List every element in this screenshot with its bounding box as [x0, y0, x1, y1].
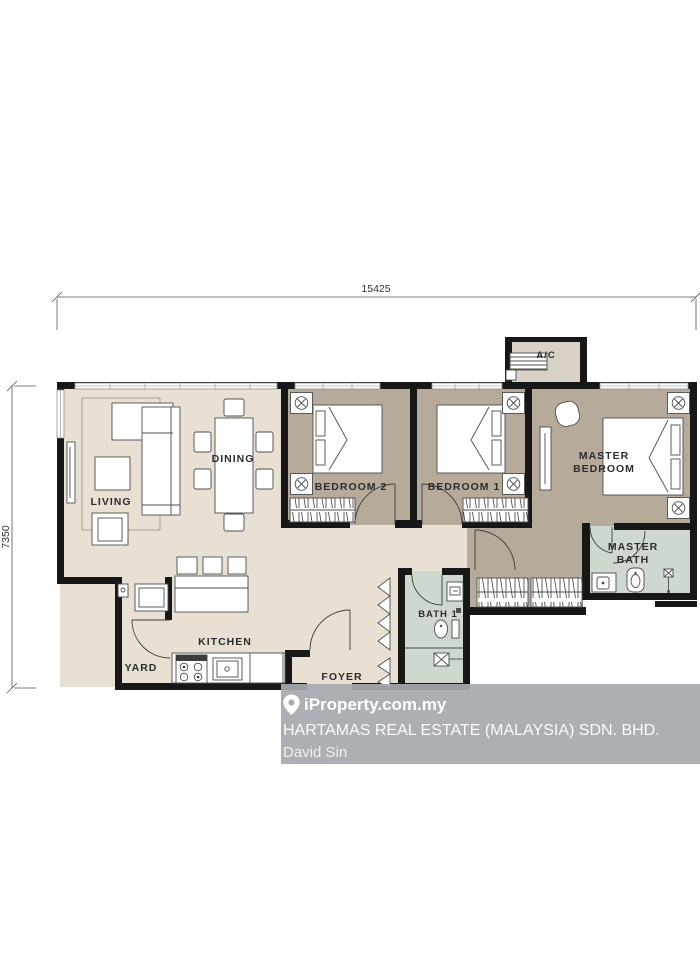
room-label-living: LIVING: [90, 496, 131, 508]
floor-plan: LIVING DINING BEDROOM 2 BEDROOM 1 MASTER…: [0, 0, 700, 976]
wall-between-doors: [395, 520, 422, 528]
room-label-master-bath-line2: BATH: [617, 554, 649, 566]
toilet-icon: [627, 568, 644, 592]
dimension-width-label: 15425: [361, 283, 390, 295]
wall-yard-left: [115, 584, 122, 690]
wall-ac-right: [580, 337, 587, 384]
room-label-foyer: FOYER: [321, 671, 362, 683]
window-living: [75, 383, 277, 389]
wall-ledge-stub: [655, 601, 697, 607]
bed-double: [313, 405, 382, 473]
dining-chair: [224, 514, 244, 531]
dining-chair: [224, 399, 244, 416]
wardrobe: [477, 578, 528, 607]
watermark-agent: David Sin: [283, 744, 347, 761]
wall-bedroom-divider: [410, 382, 417, 528]
wall-right: [690, 382, 697, 600]
room-label-bath1: BATH 1: [418, 609, 458, 620]
wall-master-bath-top: [614, 523, 697, 530]
room-label-ac: A/C: [536, 350, 555, 361]
bedside-lamp-icon: [668, 393, 690, 414]
dining-chair: [194, 469, 211, 489]
room-label-master-bedroom-line1: MASTER: [579, 450, 629, 462]
armchair: [92, 513, 128, 545]
wall-bottom-left: [115, 683, 307, 690]
fridge: [250, 653, 283, 683]
vanity-sink-icon: [592, 573, 616, 592]
tap-icon: [118, 584, 128, 597]
bed-double: [437, 405, 505, 473]
wardrobe: [463, 498, 528, 522]
watermark-agency: HARTAMAS REAL ESTATE (MALAYSIA) SDN. BHD…: [283, 722, 660, 739]
room-label-master-bath-line1: MASTER: [608, 541, 658, 553]
coffee-table: [95, 457, 130, 490]
watermark-brand: iProperty.com.my: [304, 695, 447, 714]
bedside-lamp-icon: [503, 474, 525, 495]
dresser: [540, 427, 551, 490]
bedside-lamp-icon: [668, 498, 690, 519]
wall-bath1-top-b: [442, 568, 470, 575]
tv-console: [67, 442, 75, 503]
bedside-lamp-icon: [291, 474, 313, 495]
bedside-lamp-icon: [503, 393, 525, 414]
wall-bath1-top-a: [398, 568, 412, 575]
wall-master-bath-left: [582, 523, 590, 600]
washing-machine: [135, 584, 168, 611]
ac-unit-box: [506, 370, 516, 380]
wall-ac-top: [505, 337, 587, 342]
wall-foyer-stub-h: [285, 650, 310, 657]
room-label-master-bedroom-line2: BEDROOM: [573, 463, 635, 475]
window-bedroom1: [432, 383, 502, 389]
window-bedroom2: [295, 383, 380, 389]
dining-chair: [194, 432, 211, 452]
wardrobe: [290, 498, 355, 522]
room-label-bedroom1: BEDROOM 1: [428, 481, 501, 493]
bar-stool: [203, 557, 222, 574]
room-label-bedroom2: BEDROOM 2: [315, 481, 388, 493]
mirror-cabinet: [447, 582, 463, 601]
room-label-dining: DINING: [212, 453, 255, 465]
bar-stool: [228, 557, 246, 574]
room-label-kitchen: KITCHEN: [198, 636, 252, 648]
dimension-height-label: 7350: [0, 525, 12, 549]
wall-corridor-bottom: [470, 607, 586, 615]
floor-plan-page: LIVING DINING BEDROOM 2 BEDROOM 1 MASTER…: [0, 0, 700, 976]
wall-bedroom2-left: [281, 382, 288, 528]
dining-chair: [256, 432, 273, 452]
wall-bath1-left: [398, 568, 405, 690]
room-label-yard: YARD: [125, 662, 158, 674]
wall-master-bath-bottom: [578, 593, 697, 600]
window-master-bedroom: [600, 383, 688, 389]
bar-stool: [177, 557, 197, 574]
bedside-lamp-icon: [291, 393, 313, 414]
dining-chair: [256, 469, 273, 489]
dining-table: [215, 418, 253, 513]
watermark: iProperty.com.my HARTAMAS REAL ESTATE (M…: [281, 684, 700, 764]
wardrobe: [531, 578, 582, 607]
kitchen-sink: [213, 658, 242, 680]
wall-living-bottom: [57, 577, 122, 584]
wall-bath1-right: [463, 575, 470, 690]
stove: [176, 655, 207, 683]
kitchen-island: [175, 576, 248, 612]
window-living-left: [57, 390, 64, 438]
